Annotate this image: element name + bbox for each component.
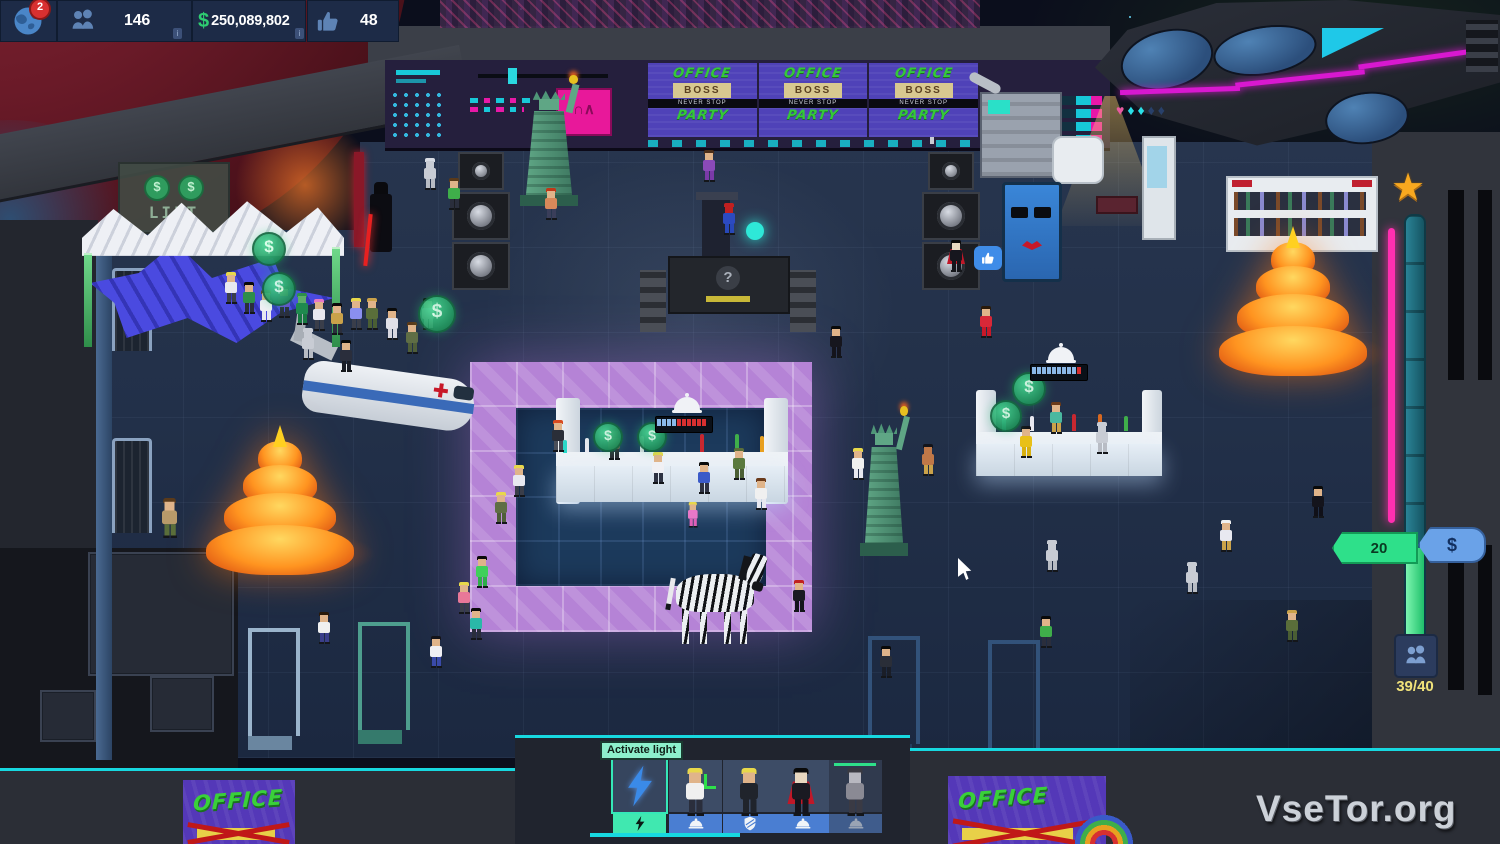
character[interactable]	[340, 340, 352, 372]
character-shoe	[1047, 646, 1052, 648]
character-torso	[1096, 432, 1108, 443]
character-leg	[547, 209, 551, 218]
liberty-statue[interactable]	[860, 416, 908, 556]
character-leg	[762, 499, 766, 508]
character-leg	[338, 324, 342, 333]
character-leg	[882, 667, 886, 676]
vader-body	[370, 194, 392, 252]
character-leg	[688, 800, 694, 814]
character-torso	[448, 188, 460, 199]
character-leg	[929, 465, 933, 474]
character-leg	[373, 319, 377, 328]
vader-character[interactable]	[366, 182, 396, 274]
character-head	[388, 311, 396, 318]
character-leg	[333, 324, 337, 333]
billboard-office-text: OFFICE	[783, 66, 843, 81]
robot-pedestal	[1096, 196, 1138, 214]
character[interactable]	[243, 282, 255, 314]
level-meter-track	[1404, 214, 1426, 552]
character-shoe	[1293, 640, 1298, 642]
info-chip[interactable]: i	[173, 28, 182, 39]
character[interactable]	[723, 203, 735, 235]
character-head	[554, 423, 562, 430]
character-head	[515, 468, 523, 475]
character-torso	[495, 502, 507, 513]
character-leg	[1103, 443, 1107, 452]
character[interactable]	[476, 556, 488, 588]
character-leg	[1098, 443, 1102, 452]
billboard-office-text: OFFICE	[894, 66, 954, 81]
character[interactable]	[162, 498, 177, 538]
money-coin[interactable]: $	[262, 272, 296, 306]
character[interactable]	[1050, 402, 1062, 434]
character-shoe	[1221, 550, 1226, 552]
character-shoe	[347, 370, 352, 372]
billboard-panel: OFFICEBOSSNEVER STOPPARTY	[759, 63, 868, 137]
info-chip[interactable]: i	[295, 28, 304, 39]
character[interactable]	[495, 492, 507, 524]
toolbar-action-activate-light[interactable]	[613, 814, 666, 833]
character-leg	[735, 469, 739, 478]
character-shoe	[1057, 432, 1062, 434]
cloche-knob	[685, 393, 689, 397]
red-wall-light	[354, 152, 364, 247]
character[interactable]	[830, 326, 842, 358]
character[interactable]	[880, 646, 892, 678]
character[interactable]	[846, 768, 864, 816]
character-leg	[1193, 583, 1197, 592]
character-torso	[1020, 436, 1032, 447]
poster-word: OFFICE	[193, 784, 295, 815]
character[interactable]	[652, 452, 664, 484]
character-torso	[476, 566, 488, 577]
character[interactable]	[793, 580, 805, 612]
character[interactable]	[688, 502, 698, 528]
character-shoe	[163, 536, 169, 539]
dj-booth-strip	[706, 296, 750, 302]
like-bubble	[974, 246, 1002, 270]
bar-bottle	[700, 434, 704, 452]
character-leg	[325, 633, 329, 642]
character-shoe	[267, 320, 272, 322]
character-leg	[856, 800, 862, 814]
character-torso	[792, 783, 810, 800]
character-shoe	[477, 586, 482, 588]
billboard-boss-text: BOSS	[784, 83, 842, 98]
character-leg	[615, 449, 619, 458]
food-cloche-icon	[672, 396, 702, 413]
shelf-accent	[1352, 180, 1372, 187]
character-shoe	[730, 233, 735, 235]
bar-counter-top[interactable]	[556, 452, 788, 466]
character-shoe	[705, 492, 710, 494]
character-leg	[757, 499, 761, 508]
cloche-base	[1046, 360, 1076, 363]
character-leg	[472, 629, 476, 638]
character-shoe	[367, 328, 372, 330]
money-coin[interactable]: $	[252, 232, 286, 266]
character-leg	[1293, 631, 1297, 640]
character-leg	[832, 347, 836, 356]
character-leg	[1052, 423, 1056, 432]
billboard-office-text: OFFICE	[672, 66, 732, 81]
character-leg	[1288, 631, 1292, 640]
character-leg	[164, 524, 169, 535]
character[interactable]	[406, 322, 418, 354]
character[interactable]	[1046, 540, 1058, 572]
character-leg	[285, 307, 289, 316]
character-leg	[957, 261, 961, 270]
character-shoe	[279, 316, 284, 318]
security-gate[interactable]	[248, 628, 300, 736]
character-leg	[689, 519, 692, 526]
character[interactable]	[980, 306, 992, 338]
cloche-dome	[674, 397, 700, 410]
character-leg	[1227, 541, 1231, 550]
character-head	[478, 559, 486, 566]
character-head	[700, 465, 708, 472]
character-shoe	[297, 323, 302, 325]
character[interactable]	[552, 420, 564, 452]
character-torso	[740, 783, 758, 800]
character-head	[725, 206, 733, 213]
dollar-icon: $	[198, 10, 209, 33]
order-progress-bar	[1030, 364, 1088, 381]
billboard-boss-text: BOSS	[673, 83, 731, 98]
character-shoe	[1193, 592, 1198, 594]
character-shoe	[303, 358, 308, 360]
character-torso	[1286, 620, 1298, 631]
character-leg	[368, 319, 372, 328]
shield-icon	[742, 816, 758, 831]
console-dot-matrix	[392, 92, 446, 138]
character-shoe	[351, 328, 356, 330]
cross-bar	[704, 786, 716, 789]
character[interactable]	[922, 444, 934, 476]
character[interactable]	[424, 158, 436, 190]
character-leg	[742, 800, 748, 814]
storage-box[interactable]	[150, 676, 214, 732]
character-leg	[304, 349, 308, 358]
character-shoe	[477, 638, 482, 640]
character-leg	[559, 441, 563, 450]
notifications-button[interactable]: 2	[0, 0, 57, 42]
character-leg	[1222, 541, 1226, 550]
character-torso	[1220, 530, 1232, 541]
likes-count: 48	[360, 12, 377, 30]
character[interactable]	[733, 448, 745, 480]
character-torso	[386, 318, 398, 329]
thumbs-up-icon	[981, 251, 995, 265]
character[interactable]	[430, 636, 442, 668]
guests-icon	[70, 8, 96, 34]
character-torso	[406, 332, 418, 343]
character-torso	[1186, 572, 1198, 583]
character-shoe	[559, 450, 564, 452]
character-leg	[413, 343, 417, 352]
character-head	[1314, 489, 1322, 496]
character-shoe	[742, 813, 750, 816]
character-leg	[478, 577, 482, 586]
character-head	[333, 306, 341, 313]
toolbar-action-staff-busy[interactable]	[829, 814, 882, 833]
toolbar-action-staff-bartender[interactable]	[669, 814, 722, 833]
character-leg	[987, 327, 991, 336]
character[interactable]	[792, 768, 810, 816]
character-shoe	[459, 612, 464, 614]
character[interactable]	[545, 188, 557, 220]
character[interactable]	[331, 303, 343, 335]
character-head	[432, 639, 440, 646]
character-leg	[1057, 423, 1061, 432]
character-leg	[710, 171, 714, 180]
character-leg	[483, 577, 487, 586]
character[interactable]	[318, 612, 330, 644]
lightning-icon	[623, 765, 657, 807]
character-shoe	[285, 316, 290, 318]
character[interactable]	[1312, 486, 1324, 518]
character-leg	[437, 657, 441, 666]
character-shoe	[449, 208, 454, 210]
console-slider-knob[interactable]	[508, 68, 517, 84]
character[interactable]	[698, 462, 710, 494]
character-torso	[545, 198, 557, 209]
billboard-boss-text: BOSS	[895, 83, 953, 98]
character-shoe	[688, 813, 696, 816]
character[interactable]	[852, 448, 864, 480]
character[interactable]	[1040, 616, 1052, 648]
lab-machine[interactable]	[980, 92, 1062, 178]
character-shoe	[734, 478, 739, 480]
character[interactable]	[1096, 422, 1108, 454]
character-shoe	[1227, 550, 1232, 552]
character-torso	[424, 168, 436, 179]
character[interactable]	[448, 178, 460, 210]
character-torso	[950, 250, 962, 261]
slot-progress	[834, 763, 876, 766]
character-leg	[298, 314, 302, 323]
character-shoe	[615, 458, 620, 460]
character[interactable]	[1286, 610, 1298, 642]
character-torso	[458, 592, 470, 603]
office-poster: OFFICE	[183, 780, 295, 844]
capacity-people-icon	[1404, 644, 1428, 668]
character[interactable]	[1186, 562, 1198, 594]
character[interactable]	[1220, 520, 1232, 552]
character-shoe	[1053, 570, 1058, 572]
bar-bottle	[760, 436, 764, 452]
zebra[interactable]	[668, 556, 772, 652]
character[interactable]	[225, 272, 237, 304]
billboard-strip-text: NEVER STOP	[648, 99, 757, 108]
character-head	[426, 161, 434, 168]
jukebox-machine[interactable]	[1002, 182, 1062, 282]
money-coin[interactable]: $	[990, 400, 1022, 432]
console-slider-track	[478, 74, 608, 78]
character-leg	[750, 800, 756, 814]
character[interactable]	[755, 478, 767, 510]
character-shoe	[987, 336, 992, 338]
elevator-door[interactable]	[112, 438, 152, 533]
bar-counter-top[interactable]	[976, 432, 1162, 444]
character-leg	[497, 513, 501, 522]
character[interactable]	[296, 293, 308, 325]
security-gate[interactable]	[988, 640, 1040, 748]
character-torso	[880, 656, 892, 667]
lightning-icon	[632, 816, 648, 831]
billboard-panel: OFFICEBOSSNEVER STOPPARTY	[869, 63, 978, 137]
character-head	[547, 191, 555, 198]
character[interactable]	[313, 299, 325, 331]
character-torso	[302, 338, 314, 349]
character-leg	[262, 311, 266, 320]
character-leg	[802, 800, 808, 814]
character-shoe	[951, 270, 956, 272]
tent-pole	[84, 253, 92, 347]
character-shoe	[514, 495, 519, 497]
character-head	[1188, 565, 1196, 572]
cross-bar	[704, 774, 707, 786]
billboard-party-text: PARTY	[897, 108, 950, 123]
character-shoe	[431, 188, 436, 190]
character[interactable]	[302, 328, 314, 360]
security-gate[interactable]	[358, 622, 410, 730]
burning-cake[interactable]	[205, 390, 355, 575]
character-torso	[430, 646, 442, 657]
character-shoe	[261, 320, 266, 322]
toolbar-slot-activate-light[interactable]	[613, 760, 666, 812]
game-screen: ∩∧ OFFICEBOSSNEVER STOPPARTYOFFICEBOSSNE…	[0, 0, 1500, 844]
character[interactable]	[1020, 426, 1032, 458]
character-shoe	[696, 813, 704, 816]
character-shoe	[837, 356, 842, 358]
money-coin[interactable]: $	[418, 295, 456, 333]
character-leg	[554, 441, 558, 450]
dj-rack	[790, 270, 816, 332]
character[interactable]	[513, 465, 525, 497]
bar-bottle	[585, 438, 589, 452]
zebra-leg	[740, 606, 747, 644]
character-leg	[303, 314, 307, 323]
character[interactable]	[950, 240, 962, 272]
character-leg	[696, 800, 702, 814]
dj-rack	[640, 270, 666, 332]
toolbar-action-staff-bouncer[interactable]	[723, 814, 776, 833]
character[interactable]	[386, 308, 398, 340]
character-shoe	[794, 610, 799, 612]
character-head	[795, 583, 803, 590]
cryo-tank[interactable]	[1052, 136, 1104, 184]
character[interactable]	[366, 298, 378, 330]
character-head	[472, 611, 480, 618]
character[interactable]	[740, 768, 758, 816]
billboard-strip-text: NEVER STOP	[869, 99, 978, 108]
character-shoe	[724, 233, 729, 235]
lab-screen	[988, 100, 1010, 114]
order-progress-bar	[655, 416, 713, 433]
storage-box[interactable]	[40, 690, 96, 742]
character-shoe	[357, 328, 362, 330]
character-shoe	[502, 522, 507, 524]
wall-window	[1448, 560, 1464, 690]
dj-booth[interactable]: ?	[668, 256, 790, 314]
character-shoe	[232, 302, 237, 304]
burning-cake[interactable]	[1218, 188, 1368, 376]
character-leg	[515, 486, 519, 495]
character-leg	[848, 800, 854, 814]
character[interactable]	[703, 150, 715, 182]
hype-meter	[1388, 228, 1395, 523]
character-head	[460, 585, 468, 592]
character-head	[1052, 405, 1060, 412]
character-leg	[1042, 637, 1046, 646]
character[interactable]	[458, 582, 470, 614]
top-wall-deco	[440, 0, 980, 28]
character-shoe	[496, 522, 501, 524]
character-shoe	[431, 666, 436, 668]
jukebox-glasses	[1034, 207, 1051, 218]
character-leg	[388, 329, 392, 338]
money-count: 250,089,802	[211, 13, 289, 29]
character[interactable]	[350, 298, 362, 330]
wall-window	[1448, 190, 1464, 380]
toolbar-action-staff-dracula[interactable]	[776, 814, 829, 833]
food-cloche-icon	[1046, 346, 1076, 363]
character-head	[1288, 613, 1296, 620]
cloche-dome	[1048, 347, 1074, 360]
character-leg	[659, 473, 663, 482]
spaceship-engine	[1466, 20, 1498, 72]
character-head	[654, 455, 662, 462]
character-shoe	[693, 526, 697, 528]
likes-icon	[316, 9, 340, 33]
cloche-knob	[1059, 343, 1063, 347]
character-shoe	[853, 478, 858, 480]
character-head	[352, 301, 360, 308]
character-shoe	[407, 352, 412, 354]
character-shoe	[325, 642, 330, 644]
gem-score-icons: ♥♦♦♦♦	[1116, 102, 1226, 120]
character-torso	[1050, 412, 1062, 423]
speaker-stack[interactable]	[452, 150, 506, 290]
money-badge[interactable]: $	[1418, 527, 1486, 563]
character-leg	[837, 347, 841, 356]
display-fridge[interactable]	[1142, 136, 1176, 240]
character-torso	[1040, 626, 1052, 637]
speaker-stack[interactable]	[922, 150, 976, 290]
money-coin[interactable]: $	[593, 422, 623, 452]
character-torso	[552, 430, 564, 441]
wall-window	[1478, 190, 1492, 380]
cloche-base	[672, 410, 702, 413]
security-gate[interactable]	[868, 636, 920, 744]
character[interactable]	[686, 768, 704, 816]
character[interactable]	[470, 608, 482, 640]
character-torso	[688, 510, 698, 519]
character-torso	[162, 511, 177, 525]
character-leg	[347, 361, 351, 370]
character-shoe	[471, 638, 476, 640]
console-chips	[470, 107, 524, 112]
character-leg	[1053, 561, 1057, 570]
character-shoe	[244, 312, 249, 314]
character-shoe	[552, 218, 557, 220]
character-shoe	[226, 302, 231, 304]
tent-canopy	[82, 195, 344, 273]
character-torso	[1312, 496, 1324, 507]
character-shoe	[609, 458, 614, 460]
character-head	[298, 296, 306, 303]
